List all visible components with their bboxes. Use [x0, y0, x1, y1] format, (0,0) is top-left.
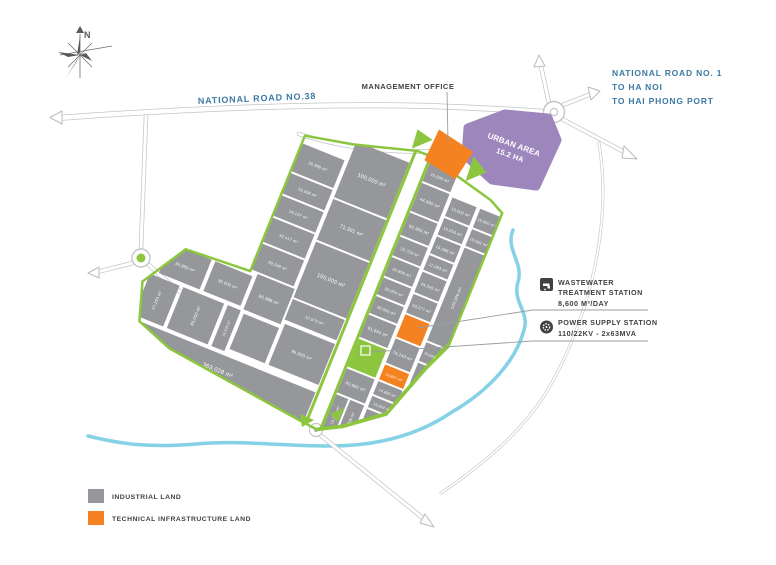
- management-office-pointer: [447, 92, 448, 142]
- wastewater-line2: TREATMENT STATION: [558, 288, 643, 297]
- road-1-line2: TO HA NOI: [612, 82, 663, 92]
- management-office-label: MANAGEMENT OFFICE: [362, 82, 455, 91]
- arrow-west-icon: [50, 111, 62, 124]
- arrow-north-icon: [534, 55, 545, 67]
- legend-infrastructure-label: TECHNICAL INFRASTRUCTURE LAND: [112, 516, 251, 523]
- roundabout-left: [132, 249, 150, 267]
- wastewater-line1: WASTEWATER: [558, 278, 614, 287]
- wastewater-line3: 8,600 M³/DAY: [558, 299, 609, 308]
- road-1-line3: TO HAI PHONG PORT: [612, 96, 714, 106]
- plot-industrial: [407, 363, 439, 399]
- compass-icon: N: [58, 26, 112, 78]
- master-plan-canvas: URBAN AREA 15.2 HA: [0, 0, 776, 565]
- water-drop: [544, 289, 546, 291]
- plot-infrastructure: [350, 437, 380, 462]
- wastewater-station-callout: WASTEWATER TREATMENT STATION 8,600 M³/DA…: [540, 278, 643, 308]
- power-station-callout: POWER SUPPLY STATION 110/22KV - 2x63MVA: [540, 318, 658, 338]
- faucet-spout: [548, 286, 551, 289]
- arrow-sw-icon: [88, 267, 99, 278]
- arrow-se-icon: [622, 146, 637, 159]
- legend-infrastructure-swatch: [88, 511, 104, 525]
- plot-industrial: [230, 314, 279, 363]
- legend-industrial-swatch: [88, 489, 104, 503]
- power-line2: 110/22KV - 2x63MVA: [558, 329, 636, 338]
- compass-north-label: N: [84, 30, 91, 40]
- road-se2-branch-surface: [562, 119, 628, 154]
- road-west-branch-surface: [97, 263, 133, 272]
- legend-industrial-label: INDUSTRIAL LAND: [112, 494, 181, 501]
- road-1-line1: NATIONAL ROAD NO. 1: [612, 68, 722, 78]
- gear-hub: [546, 326, 548, 328]
- road-1-label: NATIONAL ROAD NO. 1 TO HA NOI TO HAI PHO…: [612, 68, 722, 106]
- arrow-ne-icon: [588, 87, 600, 100]
- legend: INDUSTRIAL LAND TECHNICAL INFRASTRUCTURE…: [88, 489, 251, 525]
- south-road: [319, 434, 434, 527]
- power-line1: POWER SUPPLY STATION: [558, 318, 658, 327]
- national-road-38-surface: [58, 105, 544, 118]
- road-north-branch-surface: [540, 62, 549, 103]
- road-ne-branch-surface: [563, 94, 591, 105]
- faucet-pipe: [543, 284, 550, 287]
- master-plan-map: URBAN AREA 15.2 HA: [0, 0, 776, 565]
- roundabout-green-center: [137, 254, 146, 263]
